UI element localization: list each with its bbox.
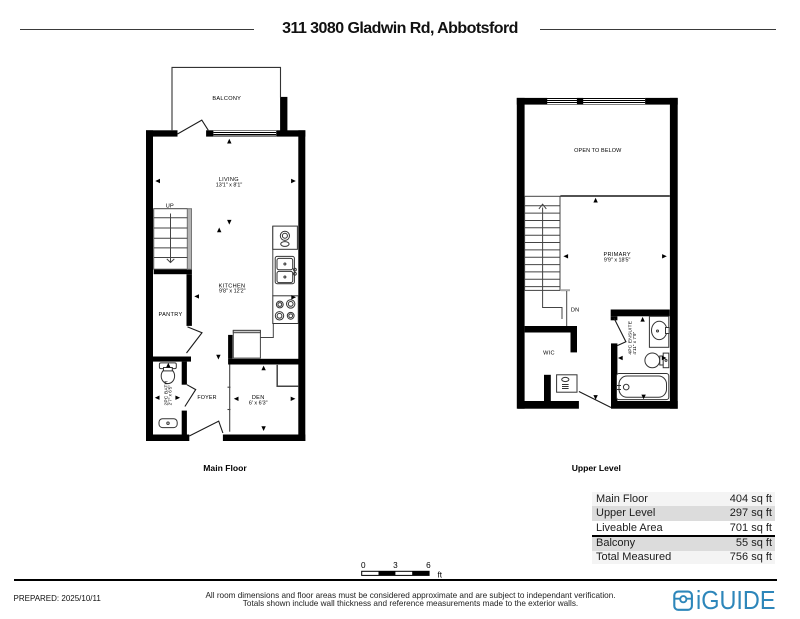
svg-text:PANTRY: PANTRY [159,312,183,318]
svg-text:13'1" x 8'1": 13'1" x 8'1" [216,182,243,188]
svg-text:UP: UP [166,203,174,209]
svg-text:6: 6 [426,561,431,570]
svg-text:9'9" x 18'5": 9'9" x 18'5" [604,257,631,263]
svg-text:4'11" x 7'9": 4'11" x 7'9" [632,332,637,355]
svg-text:DN: DN [571,308,580,314]
svg-text:9'8" x 12'2": 9'8" x 12'2" [219,288,246,294]
svg-text:Main Floor: Main Floor [203,463,247,473]
svg-text:WIC: WIC [543,351,555,357]
svg-text:2'7" x 6'5": 2'7" x 6'5" [168,385,173,406]
svg-text:0: 0 [361,561,366,570]
svg-text:Upper Level: Upper Level [572,463,621,473]
svg-text:OPEN TO BELOW: OPEN TO BELOW [574,148,622,154]
svg-text:FOYER: FOYER [197,395,216,401]
svg-text:3: 3 [393,561,398,570]
svg-text:6' x 6'3": 6' x 6'3" [249,401,268,407]
svg-text:BALCONY: BALCONY [212,96,241,102]
